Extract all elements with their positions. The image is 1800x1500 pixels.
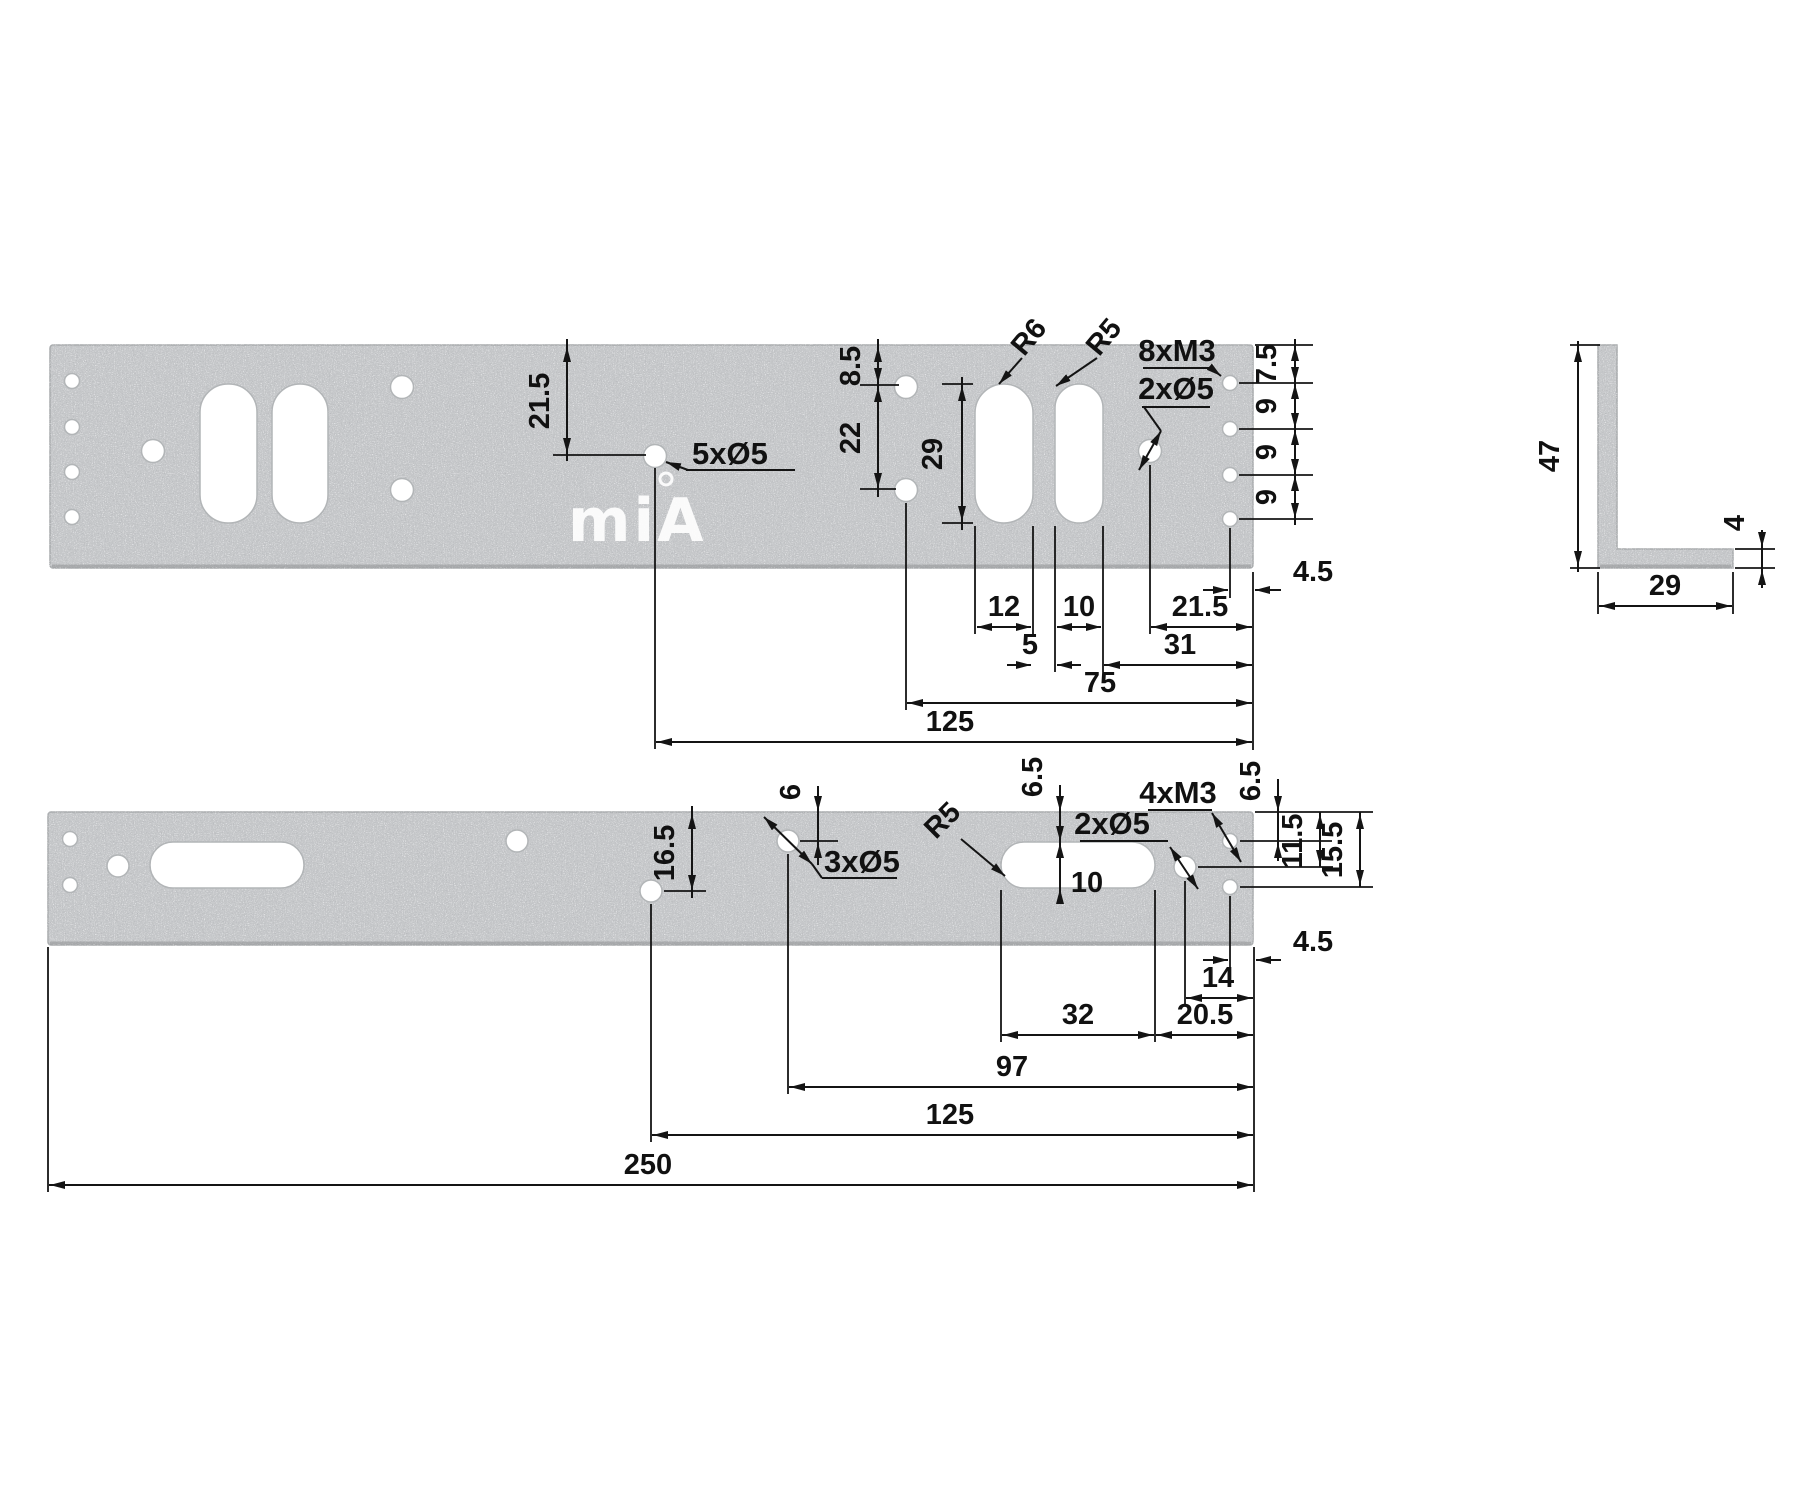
dim-side-47: 47	[1534, 341, 1600, 572]
m3-hole	[1223, 880, 1238, 895]
m3-hole	[65, 465, 80, 480]
bracket-dimension-drawing: miA 21.5 5xØ5 8.5 22	[0, 0, 1800, 1500]
dim-label: 7.5	[1251, 344, 1283, 384]
m3-hole	[65, 420, 80, 435]
dim-label: 6.5	[1017, 757, 1049, 797]
dim-label: 14	[1202, 962, 1234, 994]
dim-label: 21.5	[1172, 591, 1228, 623]
side-profile-view: 47 4 29	[1534, 341, 1775, 614]
d5-hole-center	[644, 445, 667, 468]
d5-hole	[640, 880, 662, 902]
m3-hole	[63, 878, 78, 893]
slot	[272, 384, 328, 523]
hole-spec-label: 2xØ5	[1074, 806, 1150, 841]
dim-label: 6	[775, 784, 807, 800]
dim-label: 4	[1719, 515, 1751, 531]
dim-side-29: 29	[1598, 570, 1733, 614]
dim-label: 75	[1084, 667, 1116, 699]
m3-hole	[65, 374, 80, 389]
dim-label: 10	[1071, 867, 1103, 899]
dim-top-row-5-31: 5 31	[1007, 629, 1252, 665]
m3-hole	[1223, 376, 1238, 391]
d5-hole	[895, 479, 918, 502]
dim-label: 20.5	[1177, 999, 1233, 1031]
slot-12mm	[975, 384, 1033, 523]
dim-label: 9	[1251, 398, 1283, 414]
hole-spec-label: 8xM3	[1138, 333, 1216, 368]
dim-label: 8.5	[835, 346, 867, 386]
dim-label: 15.5	[1317, 822, 1349, 878]
dim-label: 47	[1534, 440, 1566, 472]
technical-drawing-page: miA 21.5 5xØ5 8.5 22	[0, 0, 1800, 1500]
dim-label: 4.5	[1293, 556, 1333, 588]
d5-hole	[107, 855, 129, 877]
dim-label: 9	[1251, 444, 1283, 460]
dim-label: 29	[917, 438, 949, 470]
brand-watermark: miA	[568, 473, 707, 556]
dim-label: 22	[835, 422, 867, 454]
hole-spec-label: 2xØ5	[1138, 371, 1214, 406]
d5-hole	[506, 830, 528, 852]
m3-hole	[1223, 422, 1238, 437]
dim-label: 10	[1063, 591, 1095, 623]
d5-hole	[142, 440, 165, 463]
dim-label: 12	[988, 591, 1020, 623]
m3-hole	[1223, 468, 1238, 483]
dim-label: 32	[1062, 999, 1094, 1031]
dim-label: 6.5	[1235, 761, 1267, 801]
dim-label: 29	[1649, 570, 1681, 602]
dim-label: 125	[926, 706, 974, 738]
dim-label: 250	[624, 1149, 672, 1181]
slot	[200, 384, 257, 523]
top-plate-view: miA	[50, 345, 1253, 568]
hole-spec-label: 4xM3	[1139, 775, 1217, 810]
m3-hole	[65, 510, 80, 525]
m3-hole	[1223, 512, 1238, 527]
l-profile-body	[1598, 345, 1733, 568]
d5-hole	[895, 376, 918, 399]
dim-label: 5	[1022, 629, 1038, 661]
slot-10mm	[1055, 384, 1103, 523]
hole-spec-label: 5xØ5	[692, 436, 768, 471]
dim-label: 21.5	[524, 373, 556, 429]
hole-spec-label: 3xØ5	[824, 844, 900, 879]
dim-label: 11.5	[1277, 814, 1309, 869]
d5-hole	[391, 376, 414, 399]
d5-hole	[391, 479, 414, 502]
logo-text: miA	[568, 486, 707, 556]
dim-label: 9	[1251, 489, 1283, 505]
m3-hole	[63, 832, 78, 847]
dim-label: 125	[926, 1099, 974, 1131]
dim-label: 16.5	[649, 825, 681, 881]
slot	[150, 842, 304, 888]
dim-label: 31	[1164, 629, 1196, 661]
dim-label: 4.5	[1293, 926, 1333, 958]
dim-label: 97	[996, 1051, 1028, 1083]
